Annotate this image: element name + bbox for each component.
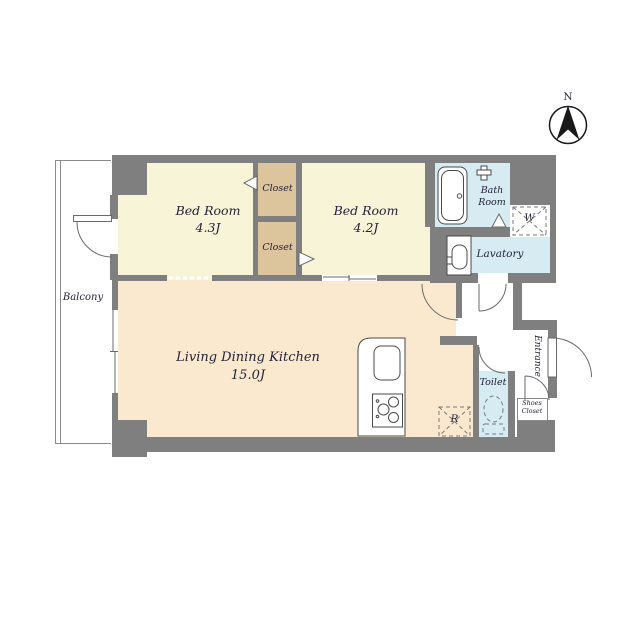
wall-washer-niche-top (510, 163, 556, 205)
corridor-floor-lower (479, 345, 508, 371)
ldk-label: Living Dining Kitchen 15.0J (166, 349, 330, 385)
corridor-floor-upper (462, 281, 513, 336)
wall-lavatory-bottom-b (508, 273, 556, 283)
closet-top-label: Closet (253, 183, 302, 194)
wall-right-outer (550, 205, 556, 273)
toilet-label: Toilet (476, 377, 510, 388)
wall-left-a (110, 195, 118, 219)
exterior-alcove (522, 283, 548, 320)
bedroom1-size: 4.3J (146, 219, 270, 236)
closet-bottom-label: Closet (253, 242, 302, 253)
bedroom2-size: 4.2J (304, 219, 428, 236)
wall-hall-stub (440, 336, 477, 345)
washer-label: W (513, 213, 546, 224)
wall-frontdoor-bottom (548, 377, 557, 398)
wall-bedrooms-bottom-b (212, 275, 322, 281)
lavatory-label: Lavatory (456, 248, 544, 260)
wall-bottom (140, 437, 520, 452)
wall-frontdoor-top (548, 330, 557, 338)
bedroom1-name: Bed Room (146, 202, 270, 219)
floor-plan: Balcony Bed Room 4.3J Bed Room 4.2J Clos… (0, 0, 640, 640)
wall-left-b (110, 254, 118, 280)
bedroom1-label: Bed Room 4.3J (146, 202, 270, 236)
wall-bottomright-pillar (517, 420, 555, 452)
ldk-name: Living Dining Kitchen (166, 349, 330, 367)
front-door-arc (553, 338, 592, 377)
ldk-window-opening (110, 310, 118, 393)
bedroom2-name: Bed Room (304, 202, 428, 219)
compass-circle (550, 107, 587, 144)
ldk-size: 15.0J (166, 367, 330, 385)
shoes-closet-line2: Closet (514, 408, 550, 416)
wall-lavatory-bottom-a (430, 273, 478, 283)
wall-toilet-left (473, 345, 479, 437)
wall-left-d (112, 392, 118, 420)
entrance-label: Entrance (530, 326, 542, 386)
wall-ldk-hall (456, 281, 462, 318)
wall-topleft-pillar (112, 155, 147, 195)
shoes-closet-label: Shoes Closet (514, 400, 550, 415)
bathroom-label: Bath Room (472, 185, 512, 208)
bathroom-label-line2: Room (472, 197, 512, 209)
wall-left-c (112, 280, 118, 310)
front-door-leaf (548, 338, 557, 377)
balcony-label: Balcony (57, 292, 109, 303)
compass-north-label: N (559, 91, 577, 103)
compass-north-arrow-icon (557, 106, 580, 141)
bedroom2-label: Bed Room 4.2J (304, 202, 428, 236)
refrigerator-label: R (439, 413, 470, 425)
bathroom-label-line1: Bath (472, 185, 512, 197)
wall-kitchen-stub (368, 382, 373, 435)
wall-top (112, 155, 556, 163)
wall-bedrooms-bottom-a (118, 275, 167, 281)
